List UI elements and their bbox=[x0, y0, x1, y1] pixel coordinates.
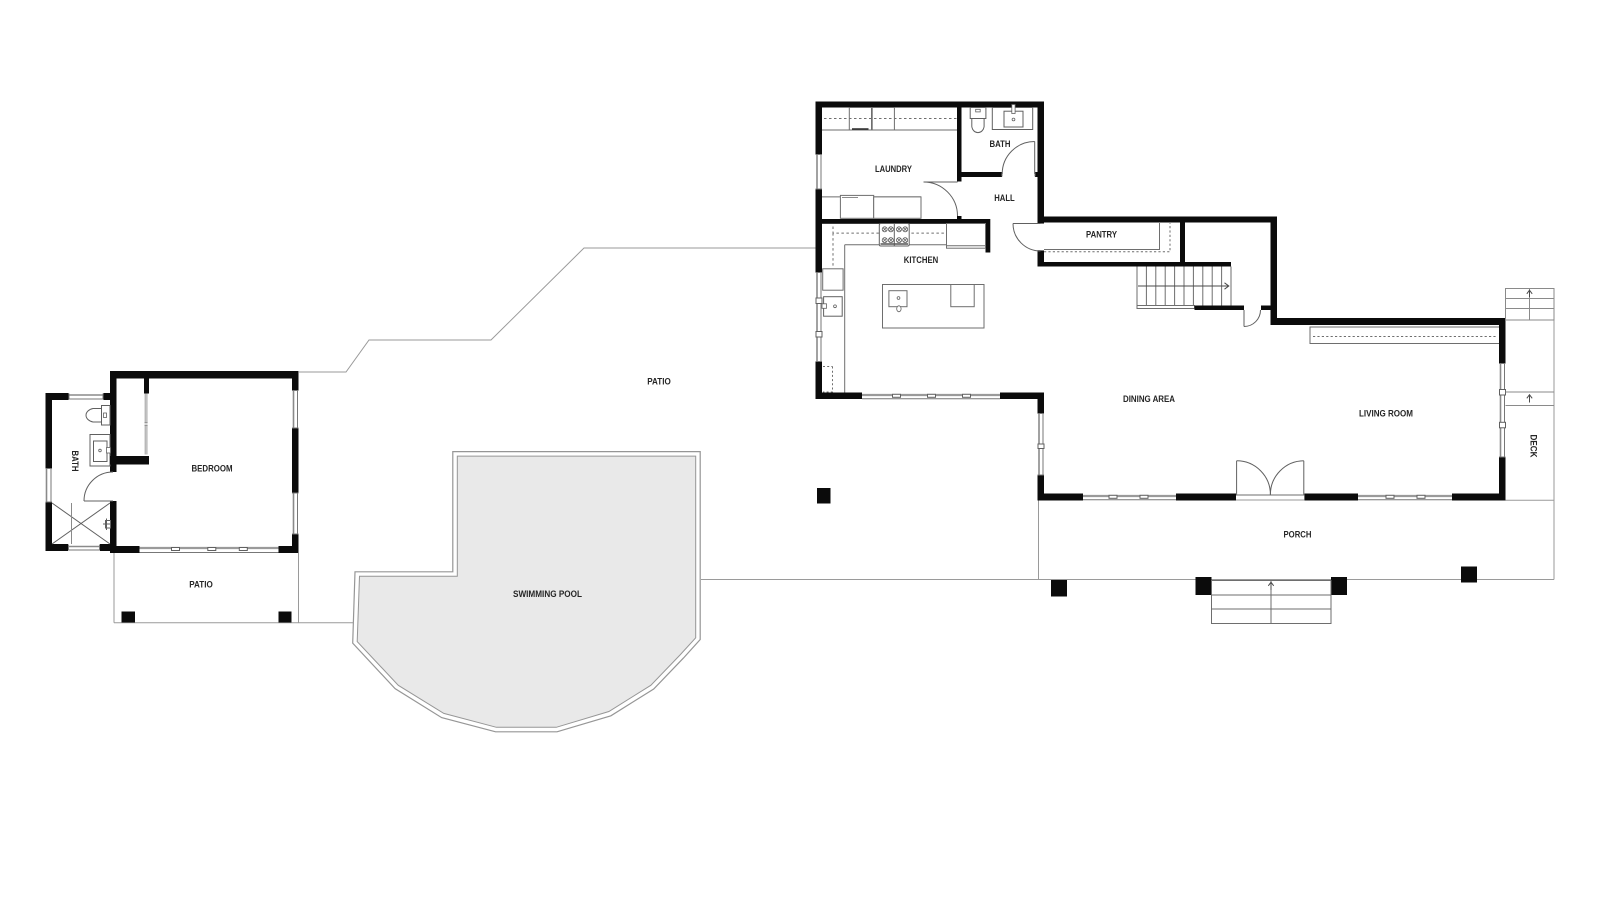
svg-text:BATH: BATH bbox=[70, 451, 80, 472]
svg-text:BEDROOM: BEDROOM bbox=[192, 463, 233, 473]
svg-text:LAUNDRY: LAUNDRY bbox=[875, 164, 912, 174]
svg-text:PATIO: PATIO bbox=[189, 579, 213, 589]
svg-text:LIVING ROOM: LIVING ROOM bbox=[1359, 408, 1413, 418]
svg-text:KITCHEN: KITCHEN bbox=[904, 255, 939, 265]
svg-text:BATH: BATH bbox=[990, 139, 1011, 149]
svg-text:PATIO: PATIO bbox=[647, 376, 671, 386]
svg-text:DINING AREA: DINING AREA bbox=[1123, 394, 1175, 404]
svg-text:HALL: HALL bbox=[994, 193, 1015, 203]
svg-text:SWIMMING POOL: SWIMMING POOL bbox=[513, 589, 582, 599]
svg-text:DECK: DECK bbox=[1529, 435, 1539, 458]
svg-text:PANTRY: PANTRY bbox=[1086, 229, 1117, 239]
svg-text:PORCH: PORCH bbox=[1284, 529, 1312, 539]
